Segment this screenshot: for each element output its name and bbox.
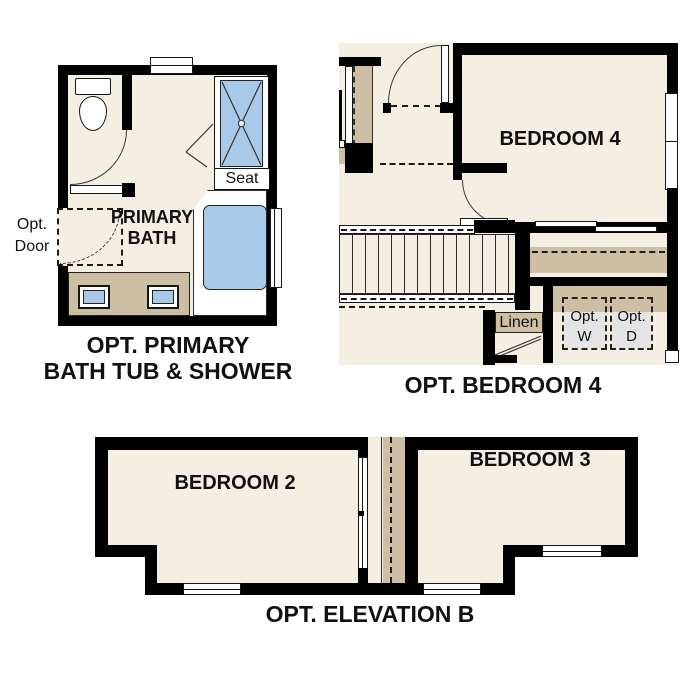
opt-door-label-line2: Door (6, 236, 58, 258)
door-ajar-lines (180, 120, 220, 172)
washer-label: Opt. W (564, 307, 605, 348)
stair-dashed-line (339, 306, 485, 308)
hall-wall (453, 163, 507, 173)
bedroom4-left-wall (453, 43, 462, 180)
bedroom4-window (665, 93, 678, 190)
sink (147, 285, 179, 309)
bedroom3-label: BEDROOM 3 (430, 449, 630, 472)
bedroom3-floor (418, 545, 503, 583)
sink (78, 285, 110, 309)
bedroom3-window (423, 583, 481, 595)
dryer-label: Opt. D (612, 307, 651, 348)
bedroom4-label: BEDROOM 4 (460, 128, 660, 151)
opt-door-label: Opt. Door (6, 214, 58, 257)
toilet-bowl (79, 96, 107, 131)
linen-box: Linen (495, 312, 543, 333)
sink-basin (152, 290, 174, 304)
bedroom2-top-wall (95, 437, 368, 450)
bedroom4-right-wall (667, 43, 678, 95)
opt-wall-dashed (380, 163, 453, 165)
window-cap (358, 445, 368, 457)
bath-plan-title-line2: BATH TUB & SHOWER (0, 358, 336, 384)
closet-shelf (353, 66, 373, 146)
stair-treads (339, 234, 515, 294)
closet-shelf-band (530, 247, 667, 273)
wall-stub (383, 103, 391, 113)
window-mullion (184, 589, 240, 590)
opt-door-label-line1: Opt. (6, 214, 58, 236)
sliding-door-panel (595, 226, 657, 232)
bathtub (203, 205, 267, 290)
closet-trim (339, 140, 345, 148)
dryer-box: Opt. D (610, 297, 653, 350)
window-joint (358, 511, 364, 516)
bath-plan-title: OPT. PRIMARY BATH TUB & SHOWER (0, 332, 336, 384)
washer-label-line1: Opt. (564, 307, 605, 327)
stair-rail (339, 294, 515, 303)
dryer-label-line2: D (612, 327, 651, 347)
tub-window (270, 208, 282, 288)
bedroom2-floor (108, 450, 360, 545)
laundry-wall (543, 277, 553, 363)
shower-seat-box: Seat (214, 168, 270, 190)
bedroom4-plan-title: OPT. BEDROOM 4 (353, 372, 653, 398)
elevation-plan: BEDROOM 2 BEDROOM 3 (95, 437, 640, 595)
right-wall (667, 233, 678, 363)
toilet-door-arc (70, 130, 127, 185)
washer-box: Opt. W (562, 297, 607, 350)
shower-pan (220, 80, 263, 167)
wall-stub (122, 183, 135, 197)
bath-top-window (150, 57, 193, 74)
toilet-tank (75, 78, 111, 95)
linen-label: Linen (499, 314, 538, 331)
window-mullion (424, 589, 480, 590)
sink-basin (83, 290, 105, 304)
primary-bath-label-line1: PRIMARY (96, 207, 208, 228)
linen-bottom-wall (490, 355, 517, 363)
small-window (665, 350, 679, 363)
toilet-room-wall (122, 75, 132, 130)
hall-door-leaf (441, 45, 449, 103)
divider-dashed-line (390, 437, 392, 583)
shower-drain-lines (221, 81, 262, 166)
bath-plan: PRIMARY BATH Seat (58, 65, 277, 326)
primary-bath-label: PRIMARY BATH (96, 207, 208, 249)
hall-door-arc (388, 45, 441, 103)
closet-wall (345, 143, 373, 173)
laundry-wall (530, 277, 667, 286)
bedroom2-floor (157, 545, 360, 583)
toilet-door-leaf (70, 185, 125, 194)
divider-strip (383, 437, 405, 583)
sliding-door-panel (535, 221, 597, 227)
opt-wall-dashed (391, 105, 441, 107)
bath-plan-title-line1: OPT. PRIMARY (0, 332, 336, 358)
stairwell-wall (515, 222, 530, 310)
floorplan-sheet: PRIMARY BATH Seat (0, 0, 687, 687)
elevation-plan-title: OPT. ELEVATION B (170, 601, 570, 627)
wall-stub (474, 220, 515, 233)
window-mullion (666, 141, 677, 142)
shower-surround (214, 76, 269, 170)
seat-label: Seat (226, 170, 259, 187)
window-mullion (543, 551, 601, 552)
bedroom4-plan: BEDROOM 4 Linen (339, 43, 678, 365)
washer-label-line2: W (564, 327, 605, 347)
shelf-dashed-line (532, 251, 665, 253)
closet-door-track (345, 66, 353, 146)
closet-wall (339, 57, 381, 66)
window-mullion (274, 209, 275, 287)
closet-shelf-stub (339, 148, 345, 164)
window-mullion (151, 65, 192, 66)
window-cap (358, 568, 368, 583)
bedroom2-window (183, 583, 241, 595)
bedroom3-window (542, 545, 602, 557)
stair-rail (339, 225, 475, 234)
bedroom2-left-wall (95, 437, 108, 557)
dryer-label-line1: Opt. (612, 307, 651, 327)
bedroom4-top-wall (453, 43, 678, 55)
primary-bath-label-line2: BATH (96, 228, 208, 249)
bedroom2-label: BEDROOM 2 (135, 472, 335, 495)
bedroom3-left-wall (405, 437, 418, 595)
divider-line (381, 437, 382, 583)
